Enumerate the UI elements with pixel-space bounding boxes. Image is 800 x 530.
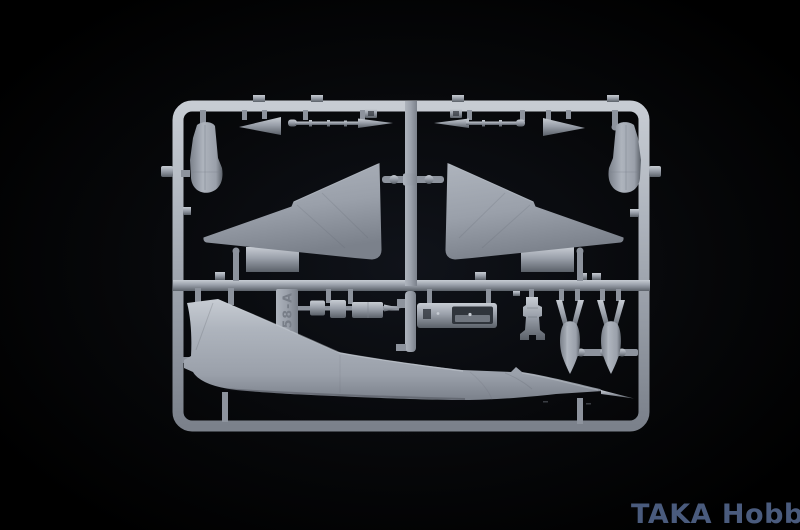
cockpit-tub-part xyxy=(417,303,497,328)
sprue-photo: 158-A xyxy=(0,0,800,530)
sprue-illustration: 158-A xyxy=(0,0,800,530)
photo-background xyxy=(0,0,800,530)
watermark-text: TAKA Hobby xyxy=(631,499,800,530)
